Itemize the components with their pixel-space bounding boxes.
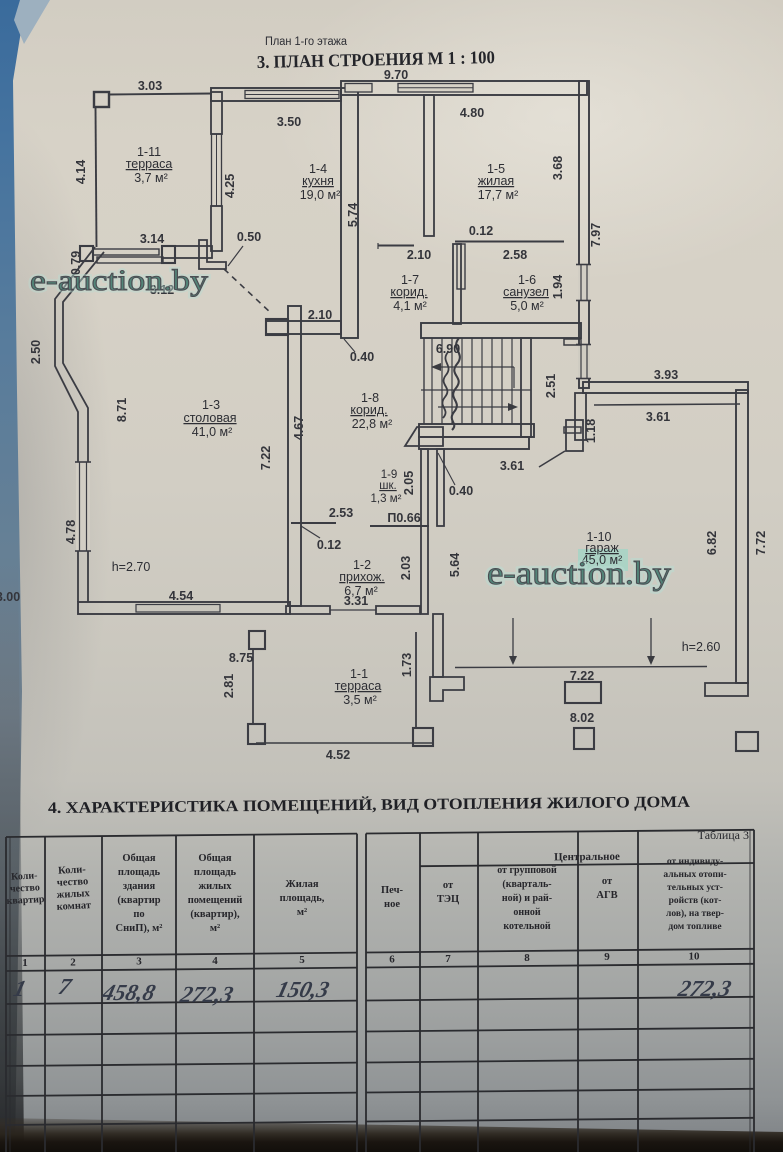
svg-text:8.02: 8.02 <box>570 711 594 725</box>
svg-text:7.97: 7.97 <box>589 223 603 247</box>
svg-text:онной: онной <box>513 907 541 918</box>
svg-text:5.74: 5.74 <box>346 203 360 227</box>
svg-text:1.18: 1.18 <box>584 419 598 443</box>
svg-text:2.81: 2.81 <box>222 674 236 698</box>
svg-text:(квартир),: (квартир), <box>190 909 240 920</box>
svg-text:7: 7 <box>445 953 451 965</box>
svg-text:4.78: 4.78 <box>64 520 78 544</box>
svg-text:от индивиду-: от индивиду- <box>667 857 723 867</box>
svg-text:квартир: квартир <box>6 894 45 907</box>
svg-text:0.12: 0.12 <box>317 538 341 552</box>
svg-text:площадь,: площадь, <box>280 893 325 904</box>
svg-text:(кварталь-: (кварталь- <box>502 879 551 890</box>
svg-text:4,1 м²: 4,1 м² <box>393 299 427 313</box>
svg-text:корид.: корид. <box>390 285 427 299</box>
svg-text:6.90: 6.90 <box>436 342 460 356</box>
svg-text:Коли-: Коли- <box>11 870 38 882</box>
svg-text:4: 4 <box>212 955 218 967</box>
svg-text:жилых: жилых <box>198 881 232 892</box>
svg-text:3.50: 3.50 <box>277 115 301 129</box>
svg-text:3.61: 3.61 <box>646 410 670 424</box>
svg-text:5.64: 5.64 <box>448 553 462 577</box>
svg-text:жилая: жилая <box>478 174 514 188</box>
svg-text:площадь: площадь <box>194 867 237 878</box>
svg-text:Коли-: Коли- <box>58 864 87 876</box>
svg-text:Жилая: Жилая <box>285 879 319 890</box>
svg-text:ТЭЦ: ТЭЦ <box>437 894 459 905</box>
svg-text:3: 3 <box>136 956 142 968</box>
svg-text:0.40: 0.40 <box>449 484 473 498</box>
svg-text:План 1-го этажа: План 1-го этажа <box>265 36 348 48</box>
svg-text:5,0 м²: 5,0 м² <box>510 299 544 313</box>
svg-text:2.51: 2.51 <box>544 374 558 398</box>
svg-text:19,0 м²: 19,0 м² <box>300 188 341 202</box>
svg-text:здания: здания <box>123 881 156 892</box>
svg-text:h=2.70: h=2.70 <box>112 560 151 574</box>
svg-text:ное: ное <box>384 899 400 910</box>
svg-text:8.71: 8.71 <box>115 398 129 422</box>
svg-text:(квартир: (квартир <box>117 895 160 906</box>
svg-text:ной) и рай-: ной) и рай- <box>502 893 552 904</box>
svg-text:дом топливе: дом топливе <box>668 922 721 932</box>
svg-text:2: 2 <box>70 956 76 968</box>
svg-text:3.93: 3.93 <box>654 368 678 382</box>
svg-text:котельной: котельной <box>503 921 551 932</box>
svg-text:2.53: 2.53 <box>329 506 353 520</box>
svg-text:4.25: 4.25 <box>223 174 237 198</box>
svg-text:2.10: 2.10 <box>308 308 332 322</box>
svg-text:3,5 м²: 3,5 м² <box>343 693 377 707</box>
svg-text:Общая: Общая <box>198 853 232 864</box>
svg-text:22,8 м²: 22,8 м² <box>352 417 393 431</box>
svg-text:1.94: 1.94 <box>551 275 565 299</box>
svg-text:м²: м² <box>297 907 307 918</box>
svg-text:2.58: 2.58 <box>503 248 527 262</box>
svg-text:м²: м² <box>210 923 220 934</box>
svg-text:от групповой: от групповой <box>497 865 557 876</box>
svg-text:5: 5 <box>299 954 305 966</box>
svg-text:1.73: 1.73 <box>400 653 414 677</box>
svg-text:3.61: 3.61 <box>500 459 524 473</box>
svg-text:17,7 м²: 17,7 м² <box>478 188 519 202</box>
svg-text:3,7 м²: 3,7 м² <box>134 171 168 185</box>
svg-text:СниП), м²: СниП), м² <box>116 923 163 934</box>
svg-text:3.14: 3.14 <box>140 232 164 246</box>
svg-text:272,3: 272,3 <box>177 982 236 1008</box>
svg-text:площадь: площадь <box>118 867 161 878</box>
svg-text:терраса: терраса <box>126 157 173 171</box>
svg-text:3. ПЛАН СТРОЕНИЯ М 1 : 100: 3. ПЛАН СТРОЕНИЯ М 1 : 100 <box>257 47 495 72</box>
svg-text:7: 7 <box>56 974 75 1000</box>
svg-text:2.03: 2.03 <box>399 556 413 580</box>
svg-text:9.70: 9.70 <box>384 68 408 82</box>
svg-text:10: 10 <box>689 950 701 962</box>
svg-text:4.52: 4.52 <box>326 748 350 762</box>
svg-text:4.67: 4.67 <box>292 416 306 440</box>
svg-text:150,3: 150,3 <box>274 977 332 1003</box>
svg-text:7.22: 7.22 <box>570 669 594 683</box>
svg-text:2.05: 2.05 <box>402 471 416 495</box>
svg-text:столовая: столовая <box>183 411 236 425</box>
svg-text:6: 6 <box>389 953 395 965</box>
svg-text:0.50: 0.50 <box>237 230 261 244</box>
svg-text:от: от <box>443 880 454 891</box>
svg-text:7.22: 7.22 <box>259 446 273 470</box>
svg-text:чество: чество <box>57 876 89 889</box>
svg-text:3.00: 3.00 <box>0 590 20 604</box>
svg-text:4.54: 4.54 <box>169 589 193 603</box>
svg-text:П0.66: П0.66 <box>387 511 420 525</box>
svg-text:корид.: корид. <box>350 403 387 417</box>
svg-text:лов), на твер-: лов), на твер- <box>666 908 724 919</box>
svg-text:6.82: 6.82 <box>705 531 719 555</box>
svg-text:8.75: 8.75 <box>229 651 253 665</box>
svg-text:9: 9 <box>604 951 610 963</box>
svg-text:санузел: санузел <box>503 285 549 299</box>
svg-text:3.68: 3.68 <box>551 156 565 180</box>
svg-text:e-auction.by: e-auction.by <box>30 264 208 297</box>
svg-text:прихож.: прихож. <box>339 570 384 584</box>
svg-text:Печ-: Печ- <box>381 885 403 896</box>
svg-text:тельных уст-: тельных уст- <box>667 883 723 893</box>
svg-text:41,0 м²: 41,0 м² <box>192 425 233 439</box>
svg-text:жилых: жилых <box>56 888 90 901</box>
svg-text:Центральное: Центральное <box>554 851 620 864</box>
svg-text:Общая: Общая <box>122 853 156 864</box>
svg-text:АГВ: АГВ <box>596 890 617 901</box>
svg-text:7.72: 7.72 <box>754 531 768 555</box>
svg-text:3.31: 3.31 <box>344 594 368 608</box>
svg-text:0.12: 0.12 <box>469 224 493 238</box>
svg-text:2.50: 2.50 <box>29 340 43 364</box>
svg-text:4. ХАРАКТЕРИСТИКА ПОМЕЩЕНИЙ, В: 4. ХАРАКТЕРИСТИКА ПОМЕЩЕНИЙ, ВИД ОТОПЛЕН… <box>48 792 691 817</box>
svg-text:4.80: 4.80 <box>460 106 484 120</box>
svg-text:h=2.60: h=2.60 <box>682 640 721 654</box>
svg-text:помещений: помещений <box>188 895 243 906</box>
svg-text:от: от <box>602 876 613 887</box>
svg-text:по: по <box>133 909 144 920</box>
svg-text:1,3 м²: 1,3 м² <box>371 493 402 505</box>
svg-text:терраса: терраса <box>335 679 382 693</box>
svg-text:4.14: 4.14 <box>74 160 88 184</box>
svg-text:8: 8 <box>524 952 530 964</box>
svg-text:ройств (кот-: ройств (кот- <box>669 895 722 906</box>
svg-text:альных отопи-: альных отопи- <box>663 870 726 880</box>
svg-text:272,3: 272,3 <box>675 976 734 1002</box>
svg-text:шк.: шк. <box>379 480 396 492</box>
svg-text:1: 1 <box>11 976 29 1002</box>
svg-text:1-3: 1-3 <box>202 398 220 412</box>
svg-text:чество: чество <box>10 882 40 895</box>
svg-text:e-auction.by: e-auction.by <box>487 556 672 592</box>
svg-text:2.10: 2.10 <box>407 248 431 262</box>
svg-text:458,8: 458,8 <box>99 980 158 1006</box>
svg-text:3.03: 3.03 <box>138 79 162 93</box>
svg-text:1: 1 <box>22 957 28 969</box>
svg-text:кухня: кухня <box>302 174 334 188</box>
svg-text:0.40: 0.40 <box>350 350 374 364</box>
svg-text:комнат: комнат <box>56 900 92 913</box>
